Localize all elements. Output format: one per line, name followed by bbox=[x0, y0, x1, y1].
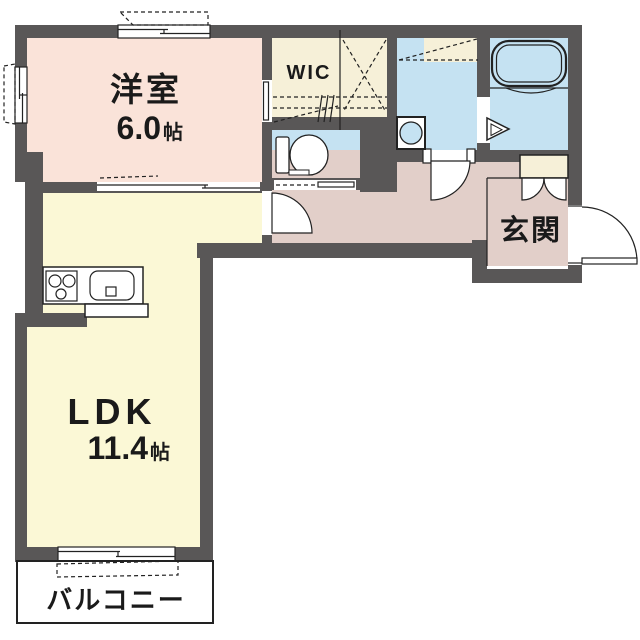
toilet-sliding-door bbox=[274, 180, 356, 190]
wic-door bbox=[262, 80, 272, 122]
entrance-label: 玄関 bbox=[500, 213, 562, 247]
western-room-size: 6.0 bbox=[117, 110, 161, 146]
wic-label: WIC bbox=[287, 62, 332, 84]
ldk-size-unit: 帖 bbox=[150, 441, 170, 464]
window-left-western-room bbox=[4, 64, 27, 124]
entrance-door-leaf bbox=[582, 258, 637, 264]
ldk-floor-main bbox=[27, 188, 200, 547]
washroom-shelf bbox=[424, 38, 480, 62]
floorplan-canvas: 洋室 6.0 帖 WIC LDK 11.4 帖 玄関 バルコニー bbox=[0, 0, 640, 640]
toilet-icon bbox=[276, 137, 289, 173]
window-ldk-balcony bbox=[58, 547, 175, 562]
window-top-western-room bbox=[118, 12, 210, 38]
ldk-size: 11.4 bbox=[87, 430, 148, 466]
balcony-label: バルコニー bbox=[46, 585, 185, 615]
eaves-dashed-outline bbox=[120, 12, 208, 25]
eaves-dashed-outline bbox=[4, 64, 15, 124]
bathroom-fixtures bbox=[490, 41, 568, 93]
door-swing-arc bbox=[582, 207, 637, 262]
shoe-cabinet-icon bbox=[520, 155, 568, 178]
western-room-size-unit: 帖 bbox=[163, 121, 183, 144]
ldk-label: LDK bbox=[68, 391, 157, 432]
floorplan-svg: 洋室 6.0 帖 WIC LDK 11.4 帖 玄関 バルコニー bbox=[0, 0, 640, 640]
bathtub-icon bbox=[492, 41, 566, 86]
toilet-fixture bbox=[276, 135, 328, 175]
western-room-label: 洋室 bbox=[110, 71, 182, 108]
entrance-door bbox=[568, 205, 637, 265]
